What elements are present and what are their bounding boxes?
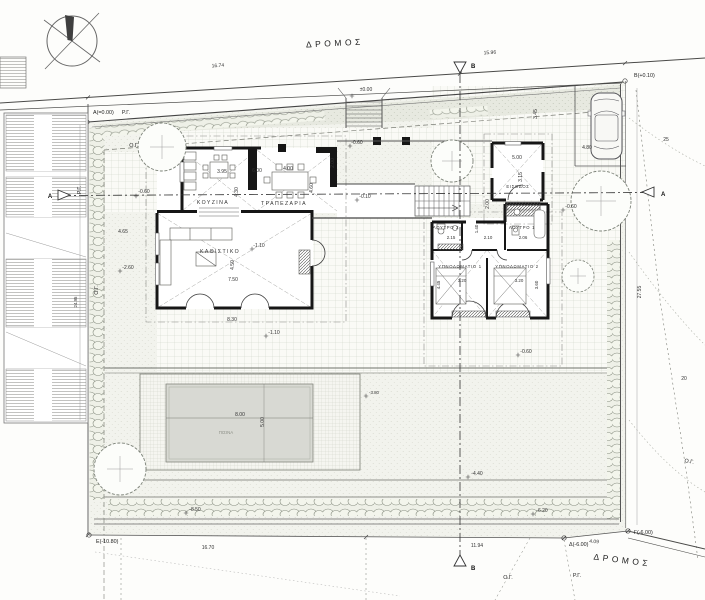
section-a-west-letter: Α bbox=[48, 194, 53, 200]
tree bbox=[571, 171, 631, 231]
tree bbox=[94, 443, 146, 495]
dim-dining-d: 4.60 bbox=[309, 183, 315, 193]
level-m850: -8.50 bbox=[189, 507, 201, 513]
rg-label-bottom: Ρ.Γ. bbox=[573, 573, 581, 579]
level-m110-south: -1.10 bbox=[268, 330, 280, 336]
fireplace bbox=[299, 250, 310, 274]
section-b-top-letter: Β bbox=[471, 64, 476, 70]
dim-bed1-d: 4.45 bbox=[436, 280, 441, 289]
dim-bath2: 2.15 bbox=[447, 235, 456, 240]
dim-living-w2: 8.30 bbox=[227, 317, 237, 323]
car bbox=[588, 93, 625, 159]
contour-20: 20 bbox=[681, 376, 687, 382]
dim-living-d: 4.50 bbox=[230, 260, 236, 270]
dim-west-side: 24.95 bbox=[73, 296, 78, 308]
room-label-bath2: ΛΟΥΤΡΟ 2 bbox=[433, 225, 459, 230]
dim-bottom-east: 4.09 bbox=[589, 539, 599, 546]
corner-e-label: Ε(-10.80) bbox=[96, 539, 119, 545]
dim-bath1: 2.06 bbox=[519, 235, 528, 240]
section-a-east-letter: Α bbox=[661, 192, 666, 198]
dim-bottom-mid: 11.94 bbox=[471, 543, 483, 549]
level-m380: -3.80 bbox=[369, 390, 380, 395]
rg-label-top: Ρ.Γ. bbox=[122, 110, 130, 116]
dim-dining-w: 4.00 bbox=[283, 166, 293, 172]
section-b-bottom-letter: Β bbox=[471, 566, 476, 572]
room-label-dining: ΤΡΑΠΕΖΑΡΙΑ bbox=[261, 201, 307, 207]
tree bbox=[562, 260, 594, 292]
bathtub bbox=[534, 210, 545, 238]
corner-c-label: Γ(-6.00) bbox=[634, 530, 653, 536]
dim-parking: 4.80 bbox=[582, 145, 592, 151]
dim-hall-d: 1.40 bbox=[474, 224, 479, 233]
dim-entry-w: 5.00 bbox=[512, 155, 522, 161]
dim-bottom-west: 16.70 bbox=[202, 545, 215, 551]
room-label-bed1: ΥΠΝΟΔΩΜΑΤΙΟ 1 bbox=[438, 264, 481, 269]
level-m110-living: -1.10 bbox=[253, 243, 265, 249]
tree bbox=[138, 123, 186, 171]
og-label-west: Ο.Γ. bbox=[94, 285, 100, 295]
dim-hall-w: 2.10 bbox=[484, 235, 493, 240]
road-label-bottom: ΔΡΟΜΟΣ bbox=[593, 552, 652, 569]
dim-kitchen-w: 3.95 bbox=[217, 169, 227, 175]
rg-label-west: Ρ.Γ. bbox=[77, 186, 83, 194]
dim-bed2-w: 3.20 bbox=[515, 278, 524, 283]
level-m440: -4.40 bbox=[471, 471, 483, 477]
room-label-entry: ΕΙΣΟΔΟΣ bbox=[506, 184, 529, 189]
sofa bbox=[170, 228, 232, 240]
room-label-bath1: ΛΟΥΤΡΟ 1 bbox=[509, 225, 535, 230]
west-hedge bbox=[90, 128, 105, 500]
dim-2-00-a: 2.00 bbox=[330, 158, 336, 168]
dim-pool-d: 5.00 bbox=[260, 417, 266, 427]
plan-canvas: ΔΡΟΜΟΣ ΔΡΟΜΟΣ 16.74 15.96 16.70 11.94 4.… bbox=[0, 0, 705, 600]
level-m620: -6.20 bbox=[536, 508, 548, 514]
dim-bed1-w: 3.20 bbox=[458, 278, 467, 283]
corner-d-label: Δ(-6.00) bbox=[569, 542, 589, 548]
dim-pool-w: 8.00 bbox=[235, 412, 245, 418]
dim-top-east: 15.96 bbox=[484, 50, 497, 57]
room-label-living: ΚΑΘΙΣΤΙΚΟ bbox=[200, 249, 240, 255]
dim-east-side: 27.55 bbox=[637, 286, 643, 299]
room-label-pool: ΠΙΣΙΝΑ bbox=[219, 430, 233, 435]
dim-6-00: 6.00 bbox=[252, 168, 262, 174]
level-m060-west: -0.60 bbox=[138, 189, 150, 195]
pool-area bbox=[140, 374, 360, 470]
neighbor-building bbox=[0, 57, 88, 423]
dim-3-45: 3.45 bbox=[533, 109, 539, 119]
east-trees-row bbox=[607, 240, 621, 520]
level-m060-north: -0.60 bbox=[351, 140, 363, 146]
dim-living-w: 7.50 bbox=[228, 277, 238, 283]
dim-entry-d: 3.15 bbox=[518, 172, 524, 182]
dining-table bbox=[272, 172, 308, 190]
pool-water bbox=[166, 384, 313, 462]
section-marker-b-south bbox=[454, 555, 466, 566]
site-plan-drawing: ΔΡΟΜΟΣ ΔΡΟΜΟΣ 16.74 15.96 16.70 11.94 4.… bbox=[0, 0, 705, 600]
dim-kitchen-d: 4.30 bbox=[234, 187, 240, 197]
tree bbox=[431, 140, 473, 182]
dim-4-65: 4.65 bbox=[118, 229, 128, 235]
corner-a-label: Α(=0.00) bbox=[93, 110, 114, 116]
contour-25: 25 bbox=[663, 137, 669, 143]
level-m060-east: -0.60 bbox=[565, 204, 577, 210]
og-label-bottom: Ο.Γ. bbox=[503, 575, 513, 581]
room-label-bed2: ΥΠΝΟΔΩΜΑΤΙΟ 2 bbox=[495, 264, 538, 269]
road-label-top: ΔΡΟΜΟΣ bbox=[306, 36, 364, 49]
dim-2-00-b: 2.00 bbox=[485, 199, 491, 209]
room-label-kitchen: ΚΟΥΖΙΝΑ bbox=[197, 200, 229, 206]
level-m260: -2.60 bbox=[122, 265, 134, 271]
north-arrow bbox=[44, 13, 100, 69]
dim-top-west: 16.74 bbox=[212, 63, 225, 70]
level-m060-terrace: -0.60 bbox=[520, 349, 532, 355]
og-label-east: Ο.Γ. bbox=[684, 458, 694, 466]
neighbor-shed bbox=[0, 57, 26, 88]
corner-b-label: Β(+0.10) bbox=[634, 73, 655, 79]
level-zero: ±0.00 bbox=[360, 87, 373, 93]
section-marker-b-north bbox=[454, 62, 466, 73]
contour-lines bbox=[629, 118, 705, 492]
level-m010: -0.10 bbox=[359, 194, 371, 200]
dim-bed2-d: 3.60 bbox=[534, 280, 539, 289]
og-label-top: Ο.Γ. bbox=[129, 143, 139, 149]
